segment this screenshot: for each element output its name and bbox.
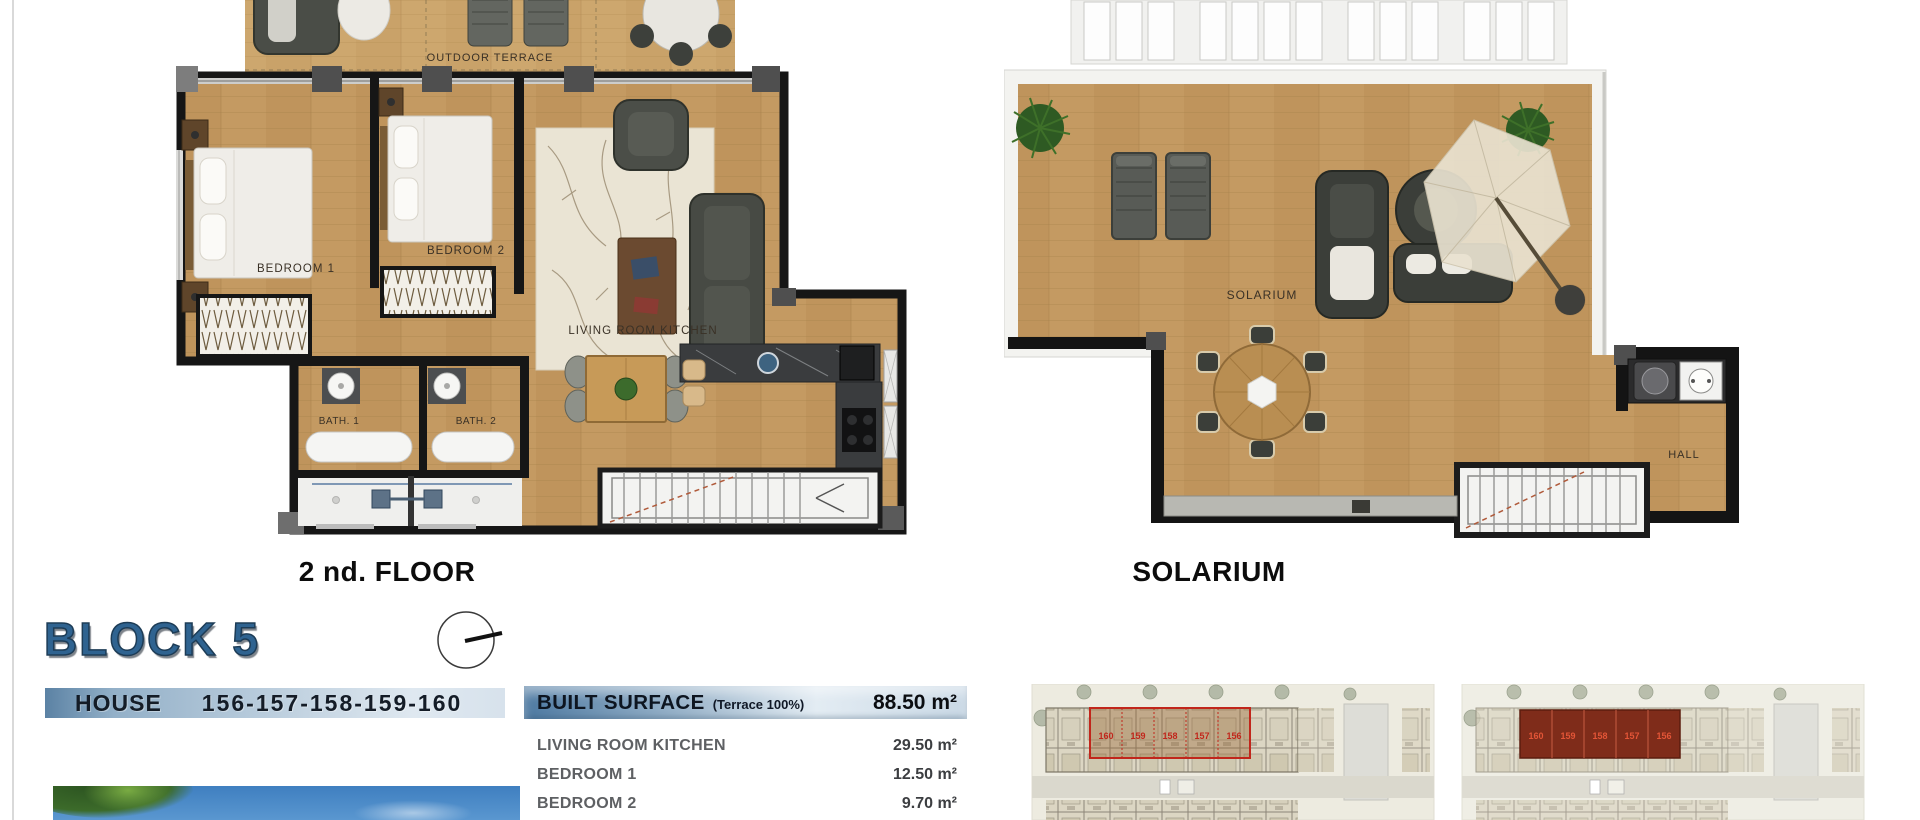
site-plan-thumbnails: 160 159 158 157 156 [1024,684,1920,820]
house-bar: HOUSE 156-157-158-159-160 [45,688,505,718]
unit-number: 156 [1226,731,1241,741]
terrace-note: (Terrace 100%) [713,693,805,712]
row-value: 29.50 m² [893,737,957,755]
stairs [600,470,880,526]
bath1-tub [306,432,412,462]
room-label-bath1: BATH. 1 [319,416,360,427]
terrace-lounger [524,0,568,46]
unit-number: 159 [1560,731,1575,741]
coffee-table [618,238,676,334]
pergola [1071,0,1567,64]
road [1462,776,1864,798]
wardrobe1 [198,296,310,356]
floor-plan-2nd-floor: OUTDOOR TERRACE [176,0,911,546]
room-label-living: LIVING ROOM KITCHEN [568,325,717,337]
solarium-stairs [1457,465,1647,535]
hob [842,408,876,452]
room-label-outdoor-terrace: OUTDOOR TERRACE [427,52,554,64]
compass-icon [436,608,506,672]
bath2-tub [432,432,514,462]
table-row: LIVING ROOM KITCHEN 29.50 m² [524,731,967,760]
ac-unit [372,490,390,508]
row-value: 12.50 m² [893,766,957,784]
room-label-bedroom1: BEDROOM 1 [257,263,335,275]
surface-table: BUILT SURFACE (Terrace 100%) 88.50 m² LI… [524,686,967,818]
built-surface-value: 88.50 m² [873,691,957,715]
highlighted-units: 160 159 158 157 156 [1520,710,1680,758]
row-label: BEDROOM 1 [537,766,637,784]
unit-number: 158 [1162,731,1177,741]
unit-number: 158 [1592,731,1607,741]
road [1032,776,1434,798]
kitchenette [1628,359,1726,403]
built-surface-label: BUILT SURFACE [537,691,705,715]
unit-number: 160 [1098,731,1113,741]
ac-unit [424,490,442,508]
photo-cloud [353,800,473,820]
unit-number: 157 [1194,731,1209,741]
outdoor-terrace: OUTDOOR TERRACE [245,0,735,76]
block-title: BLOCK 5 [44,612,260,666]
row-label: LIVING ROOM KITCHEN [537,737,726,755]
wardrobe2 [382,268,494,316]
table-row: BEDROOM 1 12.50 m² [524,760,967,789]
unit-number: 159 [1130,731,1145,741]
room-label-solarium: SOLARIUM [1227,288,1298,302]
house-numbers: 156-157-158-159-160 [202,690,463,717]
kitchen-sink [758,353,778,373]
oven [840,346,874,380]
caption-solarium: SOLARIUM [1124,556,1294,588]
terrace-lounger [468,0,512,46]
bar-stool [683,360,705,380]
bedroom2-furniture: BEDROOM 2 [379,88,505,316]
utility-balcony [298,476,522,529]
brochure-page: OUTDOOR TERRACE [0,0,1920,820]
bar-stool [683,386,705,406]
table-plant [615,378,637,400]
surface-table-header: BUILT SURFACE (Terrace 100%) 88.50 m² [524,686,967,719]
table-row: BEDROOM 2 9.70 m² [524,789,967,818]
row-label: BEDROOM 2 [537,795,637,813]
highlighted-units: 160 159 158 157 156 [1090,708,1250,758]
ledge [1164,496,1457,516]
room-label-bath2: BATH. 2 [456,416,497,427]
row-value: 9.70 m² [902,795,957,813]
room-label-bedroom2: BEDROOM 2 [427,245,505,257]
site-plan-thumbnail-2: 160 159 158 157 156 [1462,684,1864,820]
unit-number: 160 [1528,731,1543,741]
site-plan-thumbnail-1: 160 159 158 157 156 [1032,684,1434,820]
floor-plan-solarium: SOLARIUM [1004,0,1744,546]
page-edge-line [12,0,14,820]
terrace-sofa [254,0,339,54]
unit-number: 157 [1624,731,1639,741]
house-label: HOUSE [75,690,162,717]
caption-2nd-floor: 2 nd. FLOOR [292,556,482,588]
exterior-photo [53,786,520,820]
unit-number: 156 [1656,731,1671,741]
room-label-hall: HALL [1668,449,1700,461]
